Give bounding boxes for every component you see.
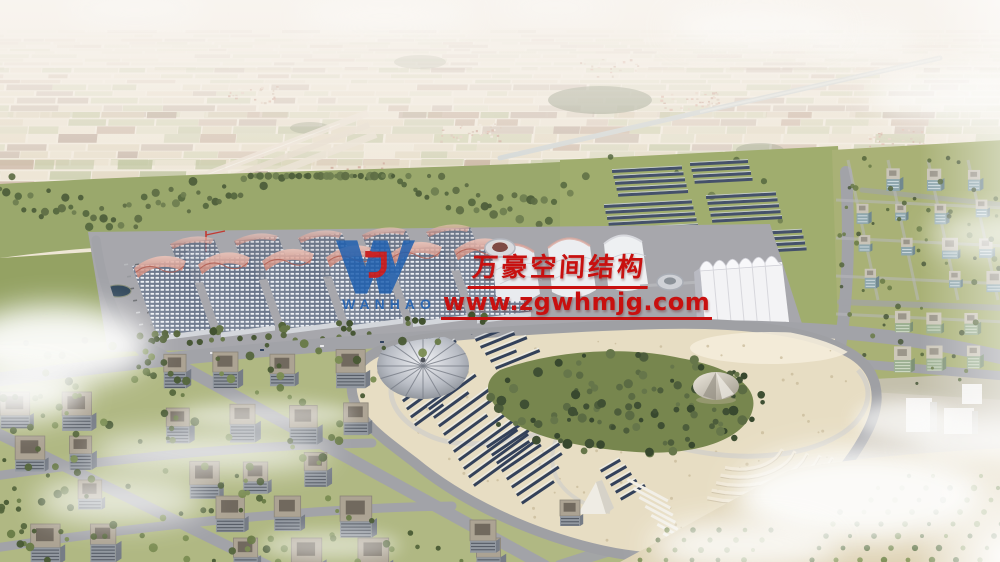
tree xyxy=(837,233,842,238)
tree xyxy=(19,529,24,534)
gravel-dot xyxy=(674,460,677,463)
gravel-dot xyxy=(615,343,617,345)
orchard-tree xyxy=(888,545,894,551)
gravel-dot xyxy=(487,480,489,482)
tree xyxy=(136,365,141,370)
tree xyxy=(545,217,553,225)
tree xyxy=(46,188,51,193)
tree xyxy=(235,474,239,478)
tree xyxy=(8,173,15,180)
tree xyxy=(401,182,407,188)
tree xyxy=(870,333,875,338)
tree xyxy=(161,359,168,366)
tree xyxy=(415,545,420,550)
tree xyxy=(70,455,78,463)
tree xyxy=(326,172,334,180)
tree xyxy=(606,349,616,359)
tree xyxy=(12,486,17,491)
gravel-dot xyxy=(688,474,690,476)
tree xyxy=(554,433,560,439)
tree xyxy=(391,174,395,178)
tree xyxy=(757,391,765,399)
tree xyxy=(73,431,80,438)
tree xyxy=(370,172,379,181)
tree xyxy=(690,411,697,418)
tree xyxy=(438,173,445,180)
tree xyxy=(532,436,541,445)
tree xyxy=(259,182,267,190)
tree xyxy=(518,417,526,425)
tree xyxy=(456,206,464,214)
tree xyxy=(729,406,739,416)
tree xyxy=(106,223,113,230)
gravel-dot xyxy=(533,516,536,519)
tree xyxy=(445,192,449,196)
cloud xyxy=(295,4,475,28)
tree xyxy=(712,408,717,413)
tree xyxy=(256,495,263,502)
gravel-dot xyxy=(554,492,556,494)
tree xyxy=(431,187,439,195)
tree xyxy=(2,458,6,462)
tree xyxy=(427,174,431,178)
tree xyxy=(436,546,441,551)
tree xyxy=(183,535,189,541)
tree xyxy=(382,346,386,350)
tree xyxy=(474,207,480,213)
gravel-dot xyxy=(448,458,451,461)
tree xyxy=(197,339,203,345)
tree xyxy=(845,206,848,209)
tree xyxy=(353,356,361,364)
tree xyxy=(13,199,19,205)
tree xyxy=(168,187,173,192)
car xyxy=(320,345,324,347)
tree xyxy=(181,192,187,198)
cloud xyxy=(260,531,400,559)
tree xyxy=(218,482,225,489)
tree xyxy=(350,331,355,336)
tree xyxy=(898,339,904,345)
tree xyxy=(468,312,475,319)
tree xyxy=(240,176,247,183)
tree xyxy=(265,333,272,340)
tree xyxy=(562,439,572,449)
tree xyxy=(126,202,131,207)
tree xyxy=(880,279,885,284)
tree xyxy=(614,408,622,416)
gravel-dot xyxy=(426,408,428,410)
tree xyxy=(639,418,644,423)
tree xyxy=(346,515,352,521)
tree xyxy=(902,201,907,206)
gravel-dot xyxy=(796,382,799,385)
tree xyxy=(917,249,921,253)
gravel-dot xyxy=(675,523,678,526)
tree xyxy=(134,215,142,223)
tree xyxy=(520,400,530,410)
tree xyxy=(500,208,508,216)
tree xyxy=(888,186,893,191)
tree xyxy=(509,384,518,393)
tree xyxy=(582,172,590,180)
scene-graphic xyxy=(0,0,1000,562)
tree xyxy=(571,390,580,399)
tree xyxy=(480,319,486,325)
tree xyxy=(65,537,70,542)
tree xyxy=(489,210,498,219)
tree xyxy=(152,189,160,197)
tree xyxy=(856,232,861,237)
tree xyxy=(247,536,256,545)
tree xyxy=(72,210,77,215)
tree xyxy=(652,387,657,392)
tree xyxy=(288,173,295,180)
tree xyxy=(219,371,224,376)
tree xyxy=(246,352,255,361)
tree xyxy=(64,411,68,415)
tree xyxy=(27,424,34,431)
gravel-dot xyxy=(761,431,764,434)
orchard-tree xyxy=(864,545,870,551)
tree xyxy=(317,461,322,466)
tree xyxy=(227,374,236,383)
gravel-dot xyxy=(818,431,820,433)
tree xyxy=(718,422,723,427)
tree xyxy=(145,359,152,366)
tree xyxy=(118,222,125,229)
gravel-dot xyxy=(576,486,578,488)
tree xyxy=(698,364,705,371)
tree xyxy=(645,448,654,457)
tree xyxy=(46,473,50,477)
tree xyxy=(690,355,699,364)
tree xyxy=(161,203,166,208)
tree xyxy=(15,193,22,200)
tree xyxy=(465,183,469,187)
tree xyxy=(347,326,352,331)
tree xyxy=(722,408,729,415)
tree xyxy=(616,384,623,391)
tree xyxy=(674,407,680,413)
tree xyxy=(639,371,648,380)
tree xyxy=(257,478,265,486)
tree xyxy=(52,463,59,470)
tree xyxy=(847,312,852,317)
tree xyxy=(883,314,889,320)
tree xyxy=(21,523,27,529)
tree xyxy=(74,469,81,476)
tree xyxy=(300,339,309,348)
tree xyxy=(862,289,865,292)
tree xyxy=(760,400,765,405)
tree xyxy=(862,156,867,161)
tree xyxy=(2,188,10,196)
cloud xyxy=(90,432,330,472)
tree xyxy=(555,359,563,367)
tree xyxy=(418,348,427,357)
tree xyxy=(897,217,901,221)
tree xyxy=(169,426,174,431)
tree xyxy=(670,365,674,369)
tree xyxy=(839,262,844,267)
tree xyxy=(486,393,495,402)
aerial-render-exhibition-complex: WANHAO 万豪空间结构 www.zgwhmjg.com xyxy=(0,0,1000,562)
gravel-dot xyxy=(745,463,748,466)
tree xyxy=(558,438,563,443)
gravel-dot xyxy=(780,356,783,359)
tree xyxy=(25,463,33,471)
tree xyxy=(41,208,49,216)
tree xyxy=(452,187,459,194)
tree xyxy=(21,207,26,212)
tree xyxy=(611,425,616,430)
car xyxy=(380,341,384,343)
tree xyxy=(200,507,206,513)
tree xyxy=(560,182,567,189)
tree xyxy=(623,428,629,434)
tree xyxy=(596,440,605,449)
tree xyxy=(587,389,593,395)
tree xyxy=(533,367,543,377)
tree xyxy=(589,418,594,423)
tree xyxy=(123,204,127,208)
tree xyxy=(149,543,158,552)
tree xyxy=(412,317,418,323)
gravel-dot xyxy=(706,345,709,348)
orchard-tree xyxy=(841,546,846,551)
tree xyxy=(203,203,209,209)
tree xyxy=(196,190,200,194)
tree xyxy=(887,286,892,291)
gravel-dot xyxy=(620,451,622,453)
tree xyxy=(582,354,586,358)
tree xyxy=(220,337,225,342)
tree xyxy=(17,499,22,504)
tree xyxy=(583,403,589,409)
tree xyxy=(588,381,594,387)
tree xyxy=(32,529,37,534)
cloud xyxy=(670,10,840,46)
tree xyxy=(230,192,237,199)
tree xyxy=(209,327,217,335)
tree xyxy=(168,371,174,377)
gravel-dot xyxy=(807,420,810,423)
car xyxy=(260,349,264,351)
tree xyxy=(244,479,248,483)
tree xyxy=(85,223,93,231)
tree xyxy=(551,199,557,205)
tree xyxy=(370,376,376,382)
tree xyxy=(256,172,264,180)
tree xyxy=(468,199,476,207)
tree xyxy=(597,420,602,425)
tree xyxy=(245,546,251,552)
tree xyxy=(883,324,886,327)
gravel-dot xyxy=(670,497,673,500)
gravel-dot xyxy=(597,341,599,343)
tree xyxy=(578,413,587,422)
tree xyxy=(657,387,663,393)
tree xyxy=(496,422,501,427)
tree xyxy=(628,393,635,400)
tree xyxy=(652,409,657,414)
tree xyxy=(341,326,347,332)
cloud xyxy=(35,476,205,524)
tree xyxy=(408,530,414,536)
tree xyxy=(58,204,66,212)
gravel-dot xyxy=(782,379,785,382)
tree xyxy=(497,194,504,201)
cloud xyxy=(65,0,205,20)
gravel-dot xyxy=(830,350,832,352)
tree xyxy=(150,372,157,379)
tree xyxy=(415,190,422,197)
tree xyxy=(734,372,739,377)
tree xyxy=(405,173,411,179)
tree xyxy=(353,174,357,178)
tree xyxy=(255,390,259,394)
tree xyxy=(17,540,25,548)
tree xyxy=(209,508,214,513)
tree xyxy=(99,206,104,211)
tree xyxy=(305,173,312,180)
tree xyxy=(550,416,558,424)
tree xyxy=(511,192,517,198)
tree xyxy=(848,186,852,190)
tree xyxy=(398,337,407,346)
cone-pavilion xyxy=(693,372,739,404)
tree xyxy=(111,217,116,222)
tree xyxy=(238,193,244,199)
tree xyxy=(27,192,33,198)
gravel-dot xyxy=(830,375,833,378)
tree xyxy=(169,389,176,396)
tree xyxy=(842,232,846,236)
tree xyxy=(276,372,284,380)
tree xyxy=(216,199,221,204)
tree xyxy=(100,419,108,427)
tree xyxy=(78,195,84,201)
gravel-dot xyxy=(606,539,609,542)
tree xyxy=(853,185,859,191)
tree xyxy=(102,534,107,539)
building-face xyxy=(895,323,910,332)
tree xyxy=(281,332,287,338)
tree xyxy=(731,435,737,441)
tree xyxy=(669,447,678,456)
tree xyxy=(676,402,680,406)
tree xyxy=(182,377,190,385)
tree xyxy=(683,424,690,431)
tree xyxy=(531,198,538,205)
tree xyxy=(507,206,512,211)
tree xyxy=(738,385,748,395)
tree xyxy=(315,347,322,354)
tree xyxy=(164,334,169,339)
tree xyxy=(684,393,689,398)
tree xyxy=(7,530,15,538)
gravel-dot xyxy=(791,373,794,376)
tree xyxy=(915,382,918,385)
tree xyxy=(58,529,63,534)
tree xyxy=(237,336,243,342)
building-face xyxy=(901,247,912,256)
tree xyxy=(335,436,344,445)
tree xyxy=(674,381,682,389)
tree xyxy=(143,368,151,376)
tree xyxy=(658,422,665,429)
gravel-dot xyxy=(660,345,663,348)
tree xyxy=(277,363,282,368)
tree xyxy=(435,339,442,346)
tree xyxy=(32,208,37,213)
tree xyxy=(405,316,410,321)
tree xyxy=(285,325,290,330)
tree xyxy=(608,154,614,160)
gravel-dot xyxy=(583,491,585,493)
tree xyxy=(68,205,73,210)
tree xyxy=(35,446,41,452)
dome-pavilion-left xyxy=(485,239,515,257)
tree xyxy=(567,190,574,197)
gravel-dot xyxy=(845,380,847,382)
tree xyxy=(487,204,492,209)
tree xyxy=(563,369,572,378)
tree xyxy=(540,196,547,203)
gravel-dot xyxy=(496,479,498,481)
tree xyxy=(187,209,191,213)
tree xyxy=(886,208,889,211)
tree xyxy=(685,437,690,442)
tree xyxy=(567,418,571,422)
tree xyxy=(624,379,633,388)
tree xyxy=(634,402,641,409)
tree xyxy=(895,304,901,310)
tree xyxy=(346,320,353,327)
gravel-dot xyxy=(821,430,824,433)
tree xyxy=(155,200,161,206)
tree xyxy=(913,197,917,201)
building-face xyxy=(894,360,911,372)
tree xyxy=(625,403,632,410)
tree xyxy=(761,178,767,184)
tree xyxy=(189,177,198,186)
tree xyxy=(868,164,871,167)
tree xyxy=(515,215,524,224)
tree xyxy=(497,396,507,406)
tree xyxy=(476,193,481,198)
tree xyxy=(133,224,138,229)
tree xyxy=(709,423,715,429)
tree xyxy=(576,372,583,379)
tree xyxy=(216,357,221,362)
tree xyxy=(16,506,21,511)
tree xyxy=(871,222,874,225)
tree xyxy=(585,439,595,449)
tree xyxy=(141,194,148,201)
tree xyxy=(277,384,285,392)
tree xyxy=(513,421,518,426)
tree xyxy=(535,420,543,428)
tree xyxy=(328,434,335,441)
tree xyxy=(239,508,244,513)
tree xyxy=(419,318,426,325)
tree xyxy=(91,533,98,540)
tree xyxy=(737,415,747,425)
tree xyxy=(840,285,844,289)
tree xyxy=(248,173,254,179)
